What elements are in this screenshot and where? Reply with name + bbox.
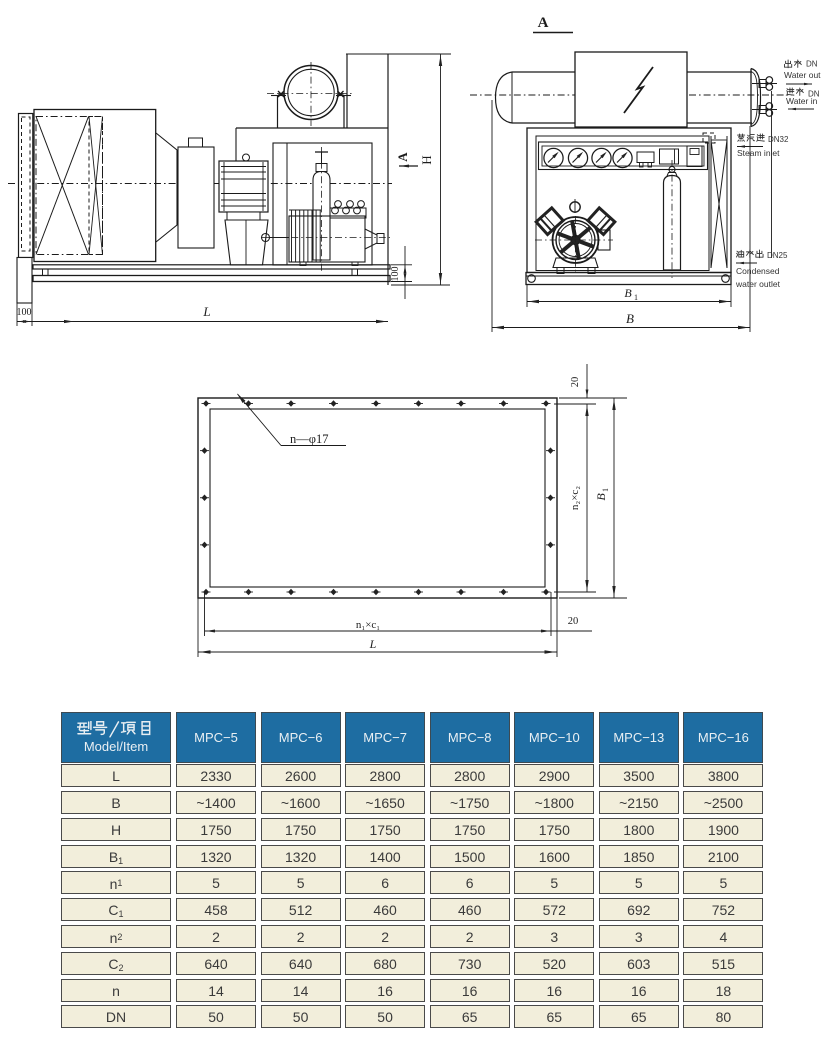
svg-text:n₁×c₁: n₁×c₁ xyxy=(356,619,380,631)
svg-text:DN25: DN25 xyxy=(767,251,788,260)
svg-text:100: 100 xyxy=(17,307,32,318)
svg-text:Condensed: Condensed xyxy=(736,266,780,276)
svg-text:Steam inlet: Steam inlet xyxy=(737,148,780,158)
svg-text:B: B xyxy=(594,493,608,501)
svg-text:Water out: Water out xyxy=(784,70,821,80)
svg-text:L: L xyxy=(369,637,377,651)
svg-text:B: B xyxy=(626,311,634,326)
svg-text:DN: DN xyxy=(806,60,818,69)
svg-text:100: 100 xyxy=(390,267,401,282)
svg-text:DN32: DN32 xyxy=(768,135,789,144)
svg-text:1: 1 xyxy=(601,488,610,492)
svg-text:B: B xyxy=(624,286,632,300)
svg-text:n₂×c₂: n₂×c₂ xyxy=(569,486,581,510)
svg-text:20: 20 xyxy=(568,616,579,627)
svg-text:water outlet: water outlet xyxy=(735,279,781,289)
svg-text:A: A xyxy=(538,15,549,31)
svg-text:A: A xyxy=(395,152,410,162)
svg-text:20: 20 xyxy=(570,377,581,388)
svg-text:n—φ17: n—φ17 xyxy=(290,432,328,446)
svg-text:L: L xyxy=(202,304,210,319)
svg-text:1: 1 xyxy=(634,293,638,302)
svg-text:H: H xyxy=(419,155,434,164)
svg-text:Water in: Water in xyxy=(786,96,818,106)
